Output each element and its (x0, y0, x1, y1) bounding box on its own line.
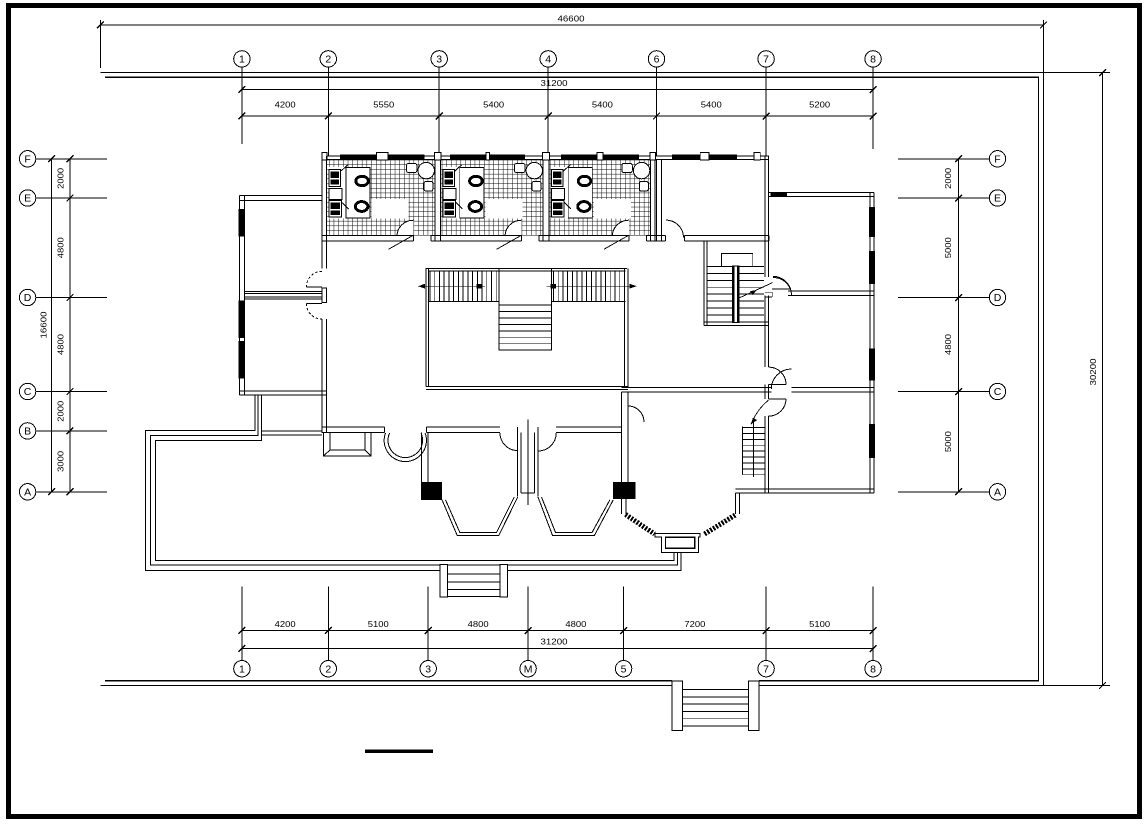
svg-text:2000: 2000 (56, 168, 66, 189)
svg-text:46600: 46600 (558, 14, 585, 24)
svg-text:5100: 5100 (368, 619, 389, 629)
svg-text:7200: 7200 (684, 619, 705, 629)
svg-text:4200: 4200 (275, 619, 296, 629)
svg-text:6: 6 (654, 54, 660, 66)
svg-text:2000: 2000 (943, 168, 953, 189)
svg-text:M: M (524, 663, 533, 675)
svg-text:C: C (24, 386, 32, 398)
svg-text:A: A (24, 486, 31, 498)
svg-text:C: C (994, 386, 1002, 398)
svg-text:4800: 4800 (56, 334, 66, 355)
svg-text:31200: 31200 (541, 637, 568, 647)
svg-text:1: 1 (239, 663, 245, 675)
svg-text:1: 1 (239, 54, 245, 66)
svg-text:D: D (994, 292, 1002, 304)
svg-text:30200: 30200 (1088, 358, 1098, 385)
svg-text:3: 3 (436, 54, 442, 66)
svg-text:4800: 4800 (943, 334, 953, 355)
svg-text:E: E (994, 193, 1001, 205)
svg-text:8: 8 (870, 663, 876, 675)
svg-text:5000: 5000 (943, 237, 953, 258)
svg-text:3000: 3000 (56, 451, 66, 472)
svg-text:F: F (24, 153, 30, 165)
svg-text:D: D (24, 292, 32, 304)
svg-text:3: 3 (425, 663, 431, 675)
svg-text:5100: 5100 (809, 619, 830, 629)
svg-text:F: F (994, 153, 1000, 165)
svg-text:5200: 5200 (809, 100, 830, 110)
svg-text:A: A (994, 486, 1001, 498)
svg-text:5400: 5400 (483, 100, 504, 110)
svg-text:8: 8 (870, 54, 876, 66)
svg-text:2: 2 (325, 54, 331, 66)
svg-text:B: B (24, 426, 31, 438)
svg-text:4800: 4800 (468, 619, 489, 629)
svg-text:5: 5 (621, 663, 627, 675)
svg-text:16600: 16600 (39, 311, 49, 338)
svg-text:7: 7 (763, 54, 769, 66)
svg-text:5400: 5400 (701, 100, 722, 110)
svg-text:4: 4 (545, 54, 551, 66)
svg-text:E: E (24, 193, 31, 205)
svg-text:5550: 5550 (373, 100, 394, 110)
svg-text:5400: 5400 (592, 100, 613, 110)
svg-text:4200: 4200 (275, 100, 296, 110)
svg-text:4800: 4800 (565, 619, 586, 629)
svg-text:5000: 5000 (943, 431, 953, 452)
svg-text:4800: 4800 (56, 237, 66, 258)
svg-text:2000: 2000 (56, 400, 66, 421)
svg-text:2: 2 (325, 663, 331, 675)
svg-text:31200: 31200 (541, 78, 568, 88)
svg-text:7: 7 (763, 663, 769, 675)
